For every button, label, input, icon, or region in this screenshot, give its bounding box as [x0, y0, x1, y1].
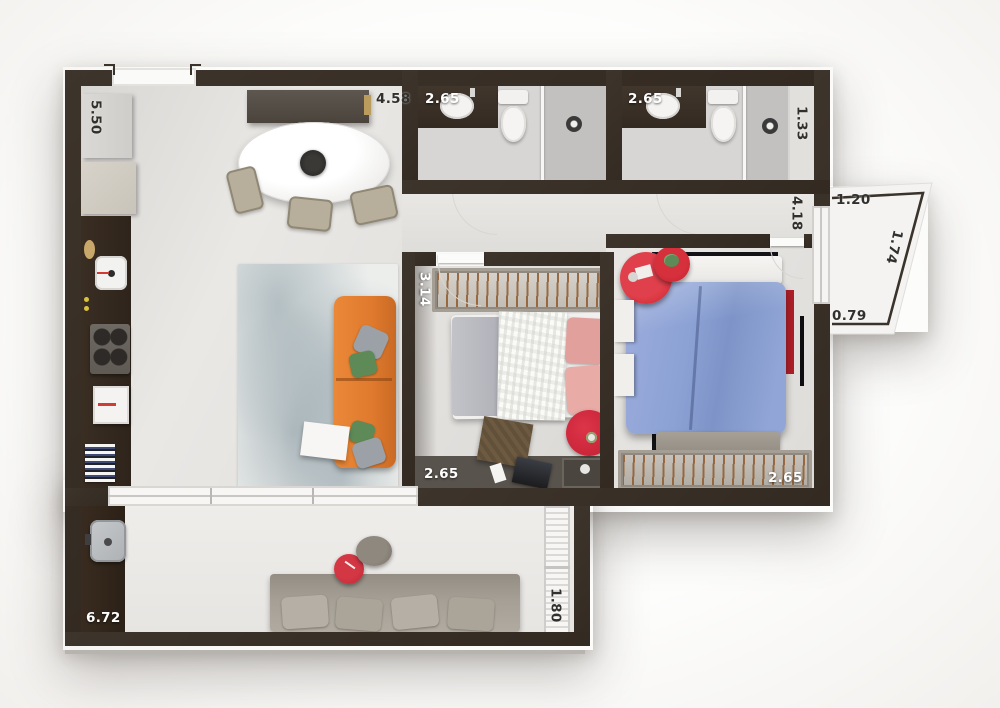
bedroom-2-door [770, 238, 804, 246]
floor-plan-canvas: 5.50 4.58 2.65 2.65 1.33 1.20 1.74 4.18 … [0, 0, 1000, 708]
bathroom-2-faucet [676, 88, 681, 97]
bedroom-2-bench [656, 432, 780, 452]
bathroom-2-toilet-bowl [711, 106, 736, 142]
bathroom-1-shower-head [566, 116, 582, 132]
side-table-dish [628, 272, 638, 282]
terrace-grill-knob [104, 538, 112, 546]
bathroom-1-toilet-tank [498, 90, 528, 104]
dim-bedroom-1-side: 3.14 [417, 272, 431, 307]
outdoor-sofa-pillow [447, 596, 495, 631]
dim-terrace-side: 1.80 [548, 588, 562, 623]
bathroom-2-shower-glass [743, 84, 746, 180]
terrace-sliding-door-track [108, 495, 418, 497]
oven-handle [98, 403, 116, 406]
dining-chair [286, 196, 333, 232]
wall-bath-bottom [402, 180, 830, 194]
wall-living-bedroom1 [402, 252, 415, 488]
sideboard-handle [364, 95, 371, 115]
bedroom-2-shelf [614, 354, 634, 396]
sideboard [247, 90, 369, 123]
wall-terrace-bottom [65, 632, 590, 646]
dim-balcony-top: 1.20 [836, 194, 871, 208]
dim-kitchen-side: 5.50 [88, 100, 102, 135]
bedroom-2-shelf [614, 300, 634, 342]
wall-bottom-main [416, 488, 830, 506]
sliding-door-divider [312, 488, 314, 504]
dim-balcony-bottom: 0.79 [832, 310, 867, 324]
terrace-grill-handle [85, 534, 91, 545]
bathroom-2-shower-head [762, 118, 778, 134]
bedroom-1-blanket [452, 317, 502, 416]
terrace-pouf [356, 536, 392, 566]
kitchen-cabinet [80, 162, 136, 214]
wall-dining-bath1 [402, 70, 418, 194]
coffee-table [300, 421, 350, 460]
dim-living-top: 4.58 [376, 93, 411, 107]
dining-centerpiece [300, 150, 326, 176]
bedroom-2-duvet [626, 282, 786, 434]
dim-bathroom-1: 2.65 [425, 93, 460, 107]
bathroom-1-toilet-bowl [501, 106, 526, 142]
entrance-door-bracket [190, 64, 201, 75]
outdoor-sofa-pillow [335, 596, 384, 632]
kitchen-sink-handle [97, 272, 109, 274]
dim-bedroom-1-width: 2.65 [424, 468, 459, 482]
outdoor-sofa-pillow [390, 594, 439, 631]
bathroom-1-shower-glass [541, 84, 544, 180]
outdoor-sofa-pillow [281, 594, 329, 629]
bathroom-1-shower-floor [544, 84, 606, 180]
bedroom-1-duvet [497, 311, 567, 420]
bedroom-1-plant [586, 432, 597, 443]
cooktop [90, 324, 130, 374]
wall-terrace-right [574, 506, 590, 646]
kitchen-jar [84, 240, 95, 259]
wall-bedroom2-top-a [606, 234, 770, 248]
terrace-slat-bench-divider [544, 566, 570, 569]
bedroom-2-tv [800, 316, 804, 386]
wall-bath-divider [606, 70, 622, 194]
bedroom-2-window-mullion [820, 206, 822, 304]
terrace-railing-shadow [65, 650, 585, 654]
bedroom-1-door [438, 254, 484, 263]
dim-corridor-side: 4.18 [789, 196, 803, 231]
entrance-door-bracket [104, 64, 115, 75]
wall-bedroom1-top-b [484, 252, 606, 266]
dim-bedroom-2-width: 2.65 [768, 472, 803, 486]
bathroom-1-faucet [470, 88, 475, 97]
dim-bathroom-2: 2.65 [628, 93, 663, 107]
kitchen-faucet [108, 270, 115, 277]
entrance-door [112, 68, 196, 86]
kitchen-knob-2 [84, 306, 89, 311]
bedroom-1-tray-cup [580, 464, 590, 474]
dish-rack [85, 444, 115, 482]
dim-shaft-side: 1.33 [794, 106, 808, 141]
wall-bottom-left-stub [65, 488, 110, 506]
sliding-door-divider [210, 488, 212, 504]
side-table-plant [664, 254, 679, 267]
dim-terrace-width: 6.72 [86, 612, 121, 626]
kitchen-knob-1 [84, 297, 89, 302]
wall-left [65, 70, 81, 646]
sofa-cushion-split [336, 378, 392, 381]
wall-bedroom-divider [600, 252, 614, 488]
bathroom-2-toilet-tank [708, 90, 738, 104]
